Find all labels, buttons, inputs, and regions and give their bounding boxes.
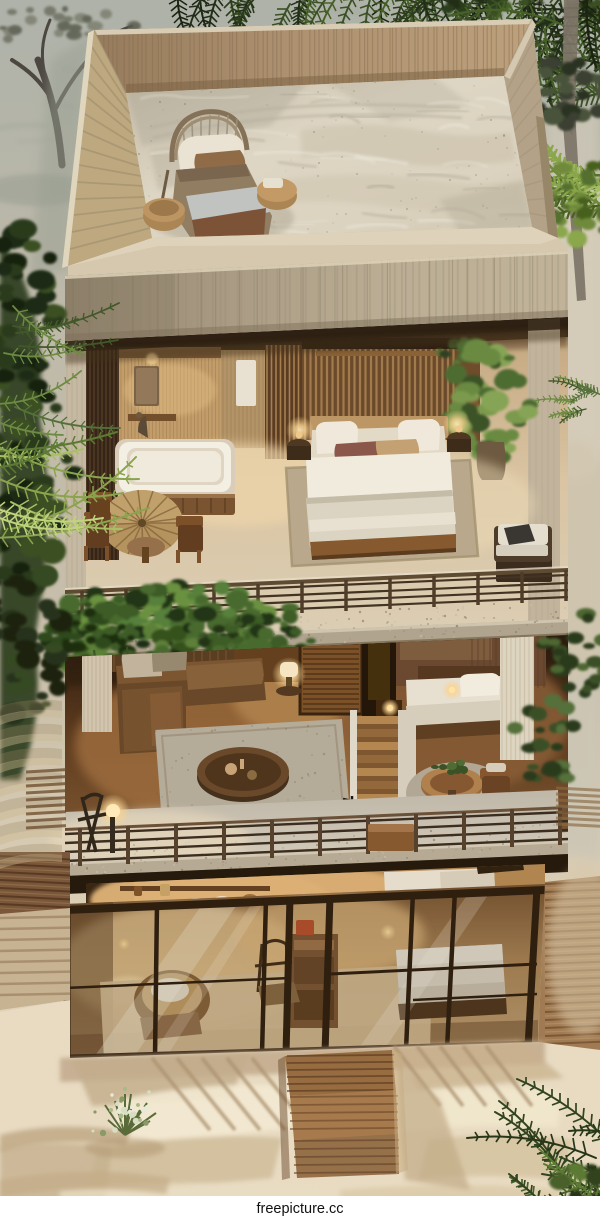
svg-text:freepicture.cc: freepicture.cc [256,1201,343,1217]
